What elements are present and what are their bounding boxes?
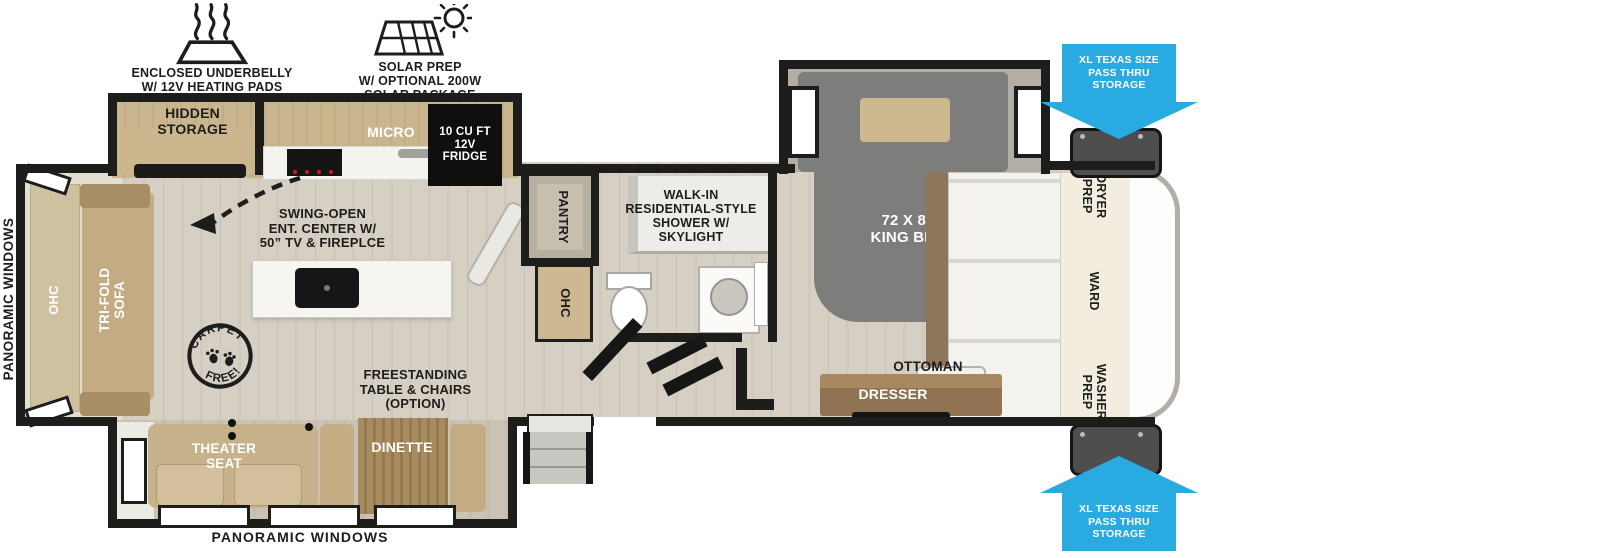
rear-ohc-label: OHC: [47, 270, 63, 330]
wall-kitchen-slide-top: [108, 93, 522, 102]
fridge-label: 10 CU FT 12V FRIDGE: [439, 126, 490, 164]
dresser-label: DRESSER: [838, 387, 948, 403]
pad-rivet: [1080, 432, 1085, 437]
theater-seat-label: THEATER SEAT: [168, 441, 280, 471]
wall-kitchen-slide-left: [108, 93, 117, 176]
bath-mirror: [754, 262, 768, 326]
washer-prep-label: WASHER PREP: [1080, 364, 1108, 420]
bed-slideout-window-left: [788, 86, 819, 158]
freestanding-label: FREESTANDING TABLE & CHAIRS (OPTION): [338, 368, 493, 412]
wall-bed-slide-left: [779, 60, 788, 174]
wall-rear-left: [16, 164, 25, 426]
ward-label: WARD: [1087, 272, 1101, 311]
wall-bottom-slide-left: [108, 417, 117, 528]
entry-step-line: [530, 448, 586, 450]
panoramic-window: [158, 505, 250, 528]
micro-label: MICRO: [355, 125, 427, 141]
entry-door-gap: [594, 417, 656, 426]
shower-label: WALK-IN RESIDENTIAL-STYLE SHOWER W/ SKYL…: [610, 188, 772, 244]
bath-bottom-wall: [628, 333, 742, 342]
pass-thru-top-label: XL TEXAS SIZE PASS THRU STORAGE: [1079, 54, 1159, 92]
cupholder-dot: [305, 423, 313, 431]
entry-step-rail-left: [523, 432, 530, 484]
solar-prep-icon: [372, 4, 472, 62]
trifold-sofa-label: TRI-FOLD SOFA: [97, 225, 131, 375]
hidden-storage-label: HIDDEN STORAGE: [130, 106, 255, 137]
wall-main-top-mid: [513, 164, 795, 173]
front-prep-labels: DRYER PREP WARD WASHER PREP: [1062, 174, 1126, 420]
pass-thru-arrow-top-head: [1040, 102, 1198, 139]
entry-step-rail-right: [586, 432, 593, 484]
ottoman-label: OTTOMAN: [868, 359, 988, 374]
bedroom-entry-wall-h: [736, 399, 774, 410]
carpet-free-stamp: CARPET FREE!: [181, 317, 260, 396]
panoramic-left-label: PANORAMIC WINDOWS: [1, 199, 17, 399]
wall-rear-top: [16, 164, 117, 173]
dinette-bench-left: [320, 424, 354, 512]
pass-thru-bottom-label: XL TEXAS SIZE PASS THRU STORAGE: [1079, 503, 1159, 541]
front-nose-cap: [1130, 168, 1180, 422]
sofa-armrest-bottom: [80, 392, 150, 416]
heating-pads-icon: [162, 2, 262, 66]
paw-prints-icon: [205, 345, 237, 371]
pantry-label: PANTRY: [550, 177, 570, 257]
panoramic-bottom-label: PANORAMIC WINDOWS: [200, 530, 400, 546]
panoramic-window: [374, 505, 456, 528]
wall-bed-slide-top: [779, 60, 1050, 69]
refrigerator: 10 CU FT 12V FRIDGE: [428, 104, 502, 186]
dinette-table: [358, 418, 448, 514]
wall-rear-bottom: [16, 417, 117, 426]
cupholder-dot: [228, 419, 236, 427]
bottom-slideout-side-window: [121, 438, 147, 504]
wall-bedroom-top-right: [1041, 161, 1155, 170]
wall-bottom-slide-right: [508, 417, 517, 528]
sink-drain-dot: [324, 285, 330, 291]
entry-landing: [527, 414, 593, 434]
entry-step-line: [530, 466, 586, 468]
underbelly-label: ENCLOSED UNDERBELLY W/ 12V HEATING PADS: [122, 66, 302, 94]
bath-ohc-label: OHC: [556, 273, 572, 333]
pass-thru-arrow-bottom-body: XL TEXAS SIZE PASS THRU STORAGE: [1062, 493, 1176, 551]
wall-bath-divider: [768, 166, 777, 342]
pass-thru-arrow-top-body: XL TEXAS SIZE PASS THRU STORAGE: [1062, 44, 1176, 102]
sofa-armrest-top: [80, 184, 150, 208]
swing-open-label: SWING-OPEN ENT. CENTER W/ 50” TV & FIREP…: [245, 207, 400, 251]
entry-steps: [523, 432, 593, 484]
vanity-sink-bowl: [710, 278, 748, 316]
dinette-label: DINETTE: [352, 440, 452, 456]
pass-thru-arrow-bottom-head: [1040, 456, 1198, 493]
floorplan-canvas: ENCLOSED UNDERBELLY W/ 12V HEATING PADS …: [0, 0, 1600, 558]
bed-pillow: [860, 98, 950, 142]
dinette-bench-right: [450, 424, 486, 512]
cupholder-dot: [228, 432, 236, 440]
panoramic-window: [268, 505, 360, 528]
dryer-prep-label: DRYER PREP: [1080, 174, 1108, 218]
